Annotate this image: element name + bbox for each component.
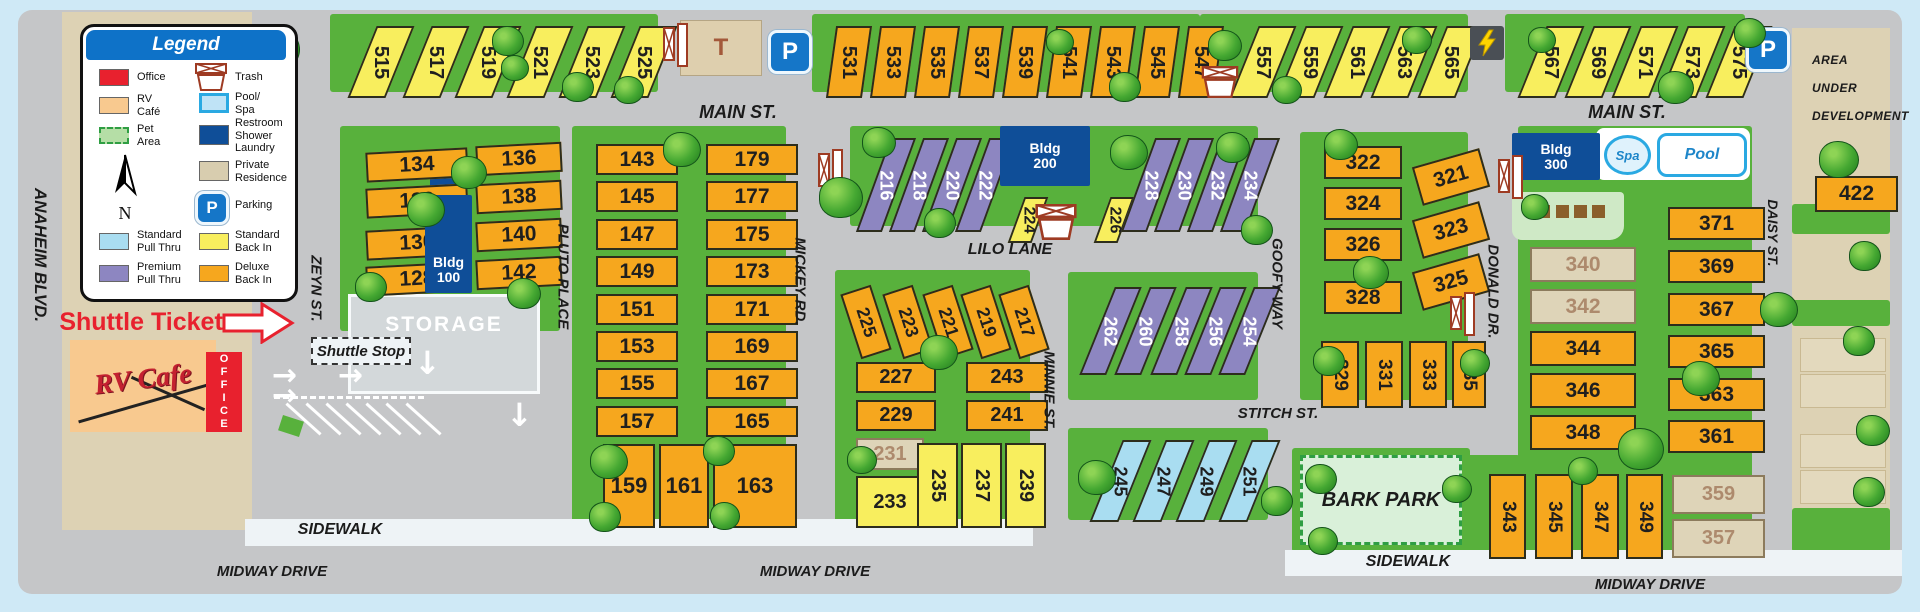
- tree-icon: [1460, 349, 1490, 377]
- pool-spa-swatch: [199, 93, 229, 113]
- tree-icon: [1856, 415, 1890, 446]
- parking-sign: P: [768, 30, 812, 74]
- legend-header: Legend: [86, 30, 286, 60]
- electric-box: [1470, 26, 1504, 60]
- pool-label: Pool: [1685, 146, 1720, 164]
- tree-icon: [1849, 241, 1881, 271]
- tree-icon: [1853, 477, 1885, 507]
- tree-icon: [920, 335, 958, 370]
- tree-icon: [1618, 428, 1664, 470]
- premium-pull-thru-swatch: [99, 265, 129, 282]
- pet-area-swatch: [99, 127, 129, 144]
- deluxe-back-in-swatch: [199, 265, 229, 282]
- legend: Legend Office Trash RVCafé Pool/Spa PetA…: [80, 24, 298, 302]
- trash-icon: [193, 63, 229, 91]
- legend-item-label: Parking: [235, 199, 272, 212]
- tree-icon: [1208, 30, 1242, 61]
- tree-icon: [1682, 361, 1720, 396]
- tree-icon: [1442, 475, 1472, 503]
- street-label-lilo-lane: LILO LANE: [930, 241, 1090, 259]
- legend-item-label: StandardBack In: [235, 229, 280, 254]
- t-building-label: T: [714, 34, 729, 62]
- trees-layer: [18, 10, 1902, 594]
- building-100-label: Bldg100: [433, 255, 464, 285]
- street-label-midway-center: MIDWAY DRIVE: [735, 563, 895, 580]
- map-canvas: STORAGE Bldg100 Bldg200 Bldg300 Spa Pool…: [18, 10, 1902, 594]
- legend-item-label: PetArea: [137, 123, 160, 148]
- compass-icon: [105, 153, 145, 203]
- hatch-line: [385, 402, 421, 435]
- tree-icon: [590, 444, 628, 479]
- tree-icon: [1313, 346, 1345, 376]
- tree-icon: [1078, 460, 1116, 495]
- tree-icon: [1110, 135, 1148, 170]
- trash-icon: [1034, 204, 1078, 240]
- t-building: T: [680, 20, 762, 76]
- lane-dashed-line: [274, 396, 424, 399]
- rv-cafe-swatch: [99, 97, 129, 114]
- legend-item-label: PremiumPull Thru: [137, 261, 181, 286]
- compass-n-label: N: [113, 203, 137, 224]
- building-300-label: Bldg300: [1540, 142, 1571, 172]
- gate-icon: [1450, 291, 1476, 337]
- tree-icon: [1324, 129, 1358, 160]
- tree-icon: [924, 208, 956, 238]
- street-label-midway-west: MIDWAY DRIVE: [192, 563, 352, 580]
- tree-icon: [1353, 256, 1389, 289]
- hatch-line: [305, 402, 341, 435]
- legend-item-label: Trash: [235, 71, 263, 84]
- street-label-pluto-place: PLUTO PLACE: [555, 197, 572, 357]
- tree-icon: [1261, 486, 1293, 516]
- shuttle-tickets-label: Shuttle Tickets: [58, 308, 238, 337]
- tree-icon: [1734, 18, 1766, 48]
- tree-icon: [492, 26, 524, 56]
- tree-icon: [562, 72, 594, 102]
- private-residence-swatch: [199, 161, 229, 181]
- lane-arrow-down-icon: ↓: [414, 344, 441, 382]
- gate-icon: [1498, 154, 1524, 200]
- tree-icon: [862, 127, 896, 158]
- lane-arrow-right-icon: →: [338, 358, 363, 393]
- pet-area-pad-4: [1592, 205, 1605, 218]
- standard-pull-thru-swatch: [99, 233, 129, 250]
- street-label-mickey-rd: MICKEY RD.: [792, 202, 809, 362]
- legend-item-label: DeluxeBack In: [235, 261, 272, 286]
- tree-icon: [1216, 132, 1250, 163]
- tree-icon: [819, 177, 863, 218]
- street-label-daisy-st: DAISY ST.: [1765, 153, 1781, 313]
- rv-cafe-label: RV Cafe: [73, 356, 214, 405]
- legend-item-label: Office: [137, 71, 166, 84]
- tree-icon: [507, 278, 541, 309]
- tree-icon: [1521, 194, 1549, 220]
- parking-sign: P: [195, 191, 229, 225]
- trash-icon: [1200, 66, 1240, 98]
- tree-icon: [589, 502, 621, 532]
- tree-icon: [1305, 464, 1337, 494]
- legend-item-label: StandardPull Thru: [137, 229, 182, 254]
- tree-icon: [1819, 141, 1859, 178]
- legend-item-label: RVCafé: [137, 93, 160, 118]
- street-label-main-st-east: MAIN ST.: [1547, 102, 1707, 123]
- tree-icon: [1272, 76, 1302, 104]
- office-swatch: [99, 69, 129, 86]
- hatch-line: [365, 402, 401, 435]
- tree-icon: [1109, 72, 1141, 102]
- tree-icon: [355, 272, 387, 302]
- tree-icon: [1241, 215, 1273, 245]
- parking-p-letter: P: [206, 198, 217, 218]
- tree-icon: [1843, 326, 1875, 356]
- sidewalk-label-east: SIDEWALK: [1328, 553, 1488, 571]
- tree-icon: [1528, 27, 1556, 53]
- parking-hatch: [288, 402, 434, 436]
- street-label-midway-east: MIDWAY DRIVE: [1570, 576, 1730, 593]
- street-label-minnie-st: MINNIE ST.: [1041, 311, 1058, 471]
- pool: Pool: [1657, 133, 1747, 177]
- standard-back-in-swatch: [199, 233, 229, 250]
- legend-title: Legend: [152, 34, 220, 56]
- street-label-stitch-st: STITCH ST.: [1198, 405, 1358, 422]
- office-building: OFFICE: [206, 352, 242, 432]
- sidewalk-label-west: SIDEWALK: [260, 521, 420, 539]
- legend-item-label: Pool/Spa: [235, 91, 260, 116]
- building-200: Bldg200: [1000, 126, 1090, 186]
- street-label-main-st-west: MAIN ST.: [658, 102, 818, 123]
- tree-icon: [847, 446, 877, 474]
- hatch-line: [325, 402, 361, 435]
- shuttle-stop-label: Shuttle Stop: [317, 343, 405, 360]
- tree-icon: [703, 436, 735, 466]
- building-300: Bldg300: [1512, 133, 1600, 180]
- spa: Spa: [1604, 135, 1651, 175]
- parking-p-letter: P: [782, 38, 798, 66]
- rv-cafe-building: RV Cafe: [70, 340, 216, 432]
- building-200-label: Bldg200: [1029, 141, 1060, 171]
- shuttle-tickets-arrow-icon: [222, 302, 296, 344]
- tree-icon: [1046, 29, 1074, 55]
- legend-item-label: PrivateResidence: [235, 159, 287, 184]
- tree-icon: [1760, 292, 1798, 327]
- tree-icon: [1402, 26, 1432, 54]
- pet-area-pad-3: [1574, 205, 1587, 218]
- office-label: OFFICE: [220, 353, 229, 431]
- gate-icon: [663, 22, 689, 68]
- tree-icon: [501, 55, 529, 81]
- restroom-swatch: [199, 125, 229, 145]
- rv-park-site-map: STORAGE Bldg100 Bldg200 Bldg300 Spa Pool…: [0, 0, 1920, 612]
- tree-icon: [710, 502, 740, 530]
- tree-icon: [1308, 527, 1338, 555]
- bark-park-label: BARK PARK: [1322, 489, 1441, 512]
- lane-arrow-down-icon: ↓: [506, 396, 533, 434]
- street-label-donald-dr: DONALD DR.: [1485, 212, 1502, 372]
- tree-icon: [614, 76, 644, 104]
- spa-label: Spa: [1616, 148, 1640, 163]
- legend-item-label: RestroomShowerLaundry: [235, 117, 283, 155]
- pet-area-pad-2: [1556, 205, 1569, 218]
- tree-icon: [1568, 457, 1598, 485]
- tree-icon: [407, 192, 445, 227]
- street-label-anaheim-blvd: ANAHEIM BLVD.: [30, 175, 50, 335]
- lightning-icon: [1476, 29, 1498, 57]
- tree-icon: [451, 156, 487, 189]
- tree-icon: [663, 132, 701, 167]
- hatch-line: [345, 402, 381, 435]
- tree-icon: [1658, 71, 1694, 104]
